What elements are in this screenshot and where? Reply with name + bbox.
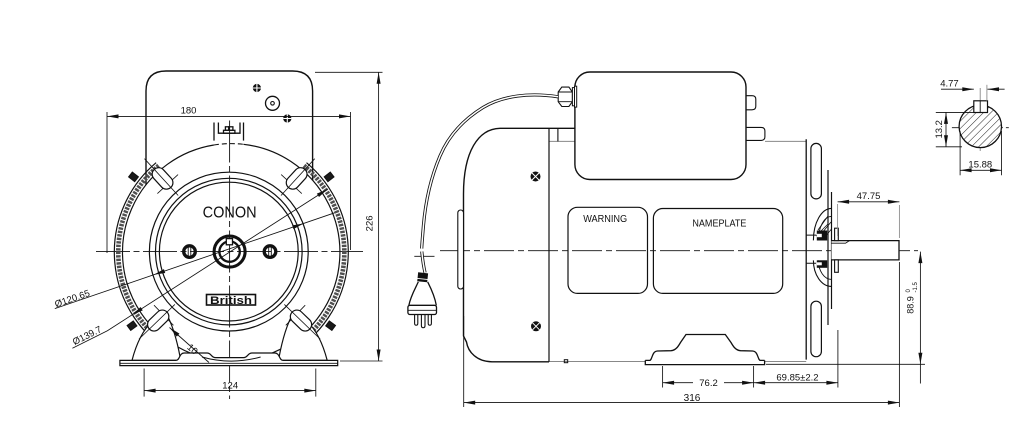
svg-text:76.2: 76.2	[699, 378, 718, 389]
svg-text:CONON: CONON	[203, 205, 257, 222]
svg-text:47.75: 47.75	[857, 191, 881, 202]
svg-text:4.77: 4.77	[940, 78, 959, 89]
svg-text:13.2: 13.2	[934, 120, 945, 139]
svg-text:WARNING: WARNING	[583, 214, 627, 225]
svg-text:-1.5: -1.5	[913, 281, 919, 292]
svg-text:69.85±2.2: 69.85±2.2	[776, 372, 818, 383]
svg-text:88.9: 88.9	[906, 296, 916, 314]
svg-text:226: 226	[364, 215, 375, 231]
svg-text:180: 180	[181, 106, 197, 117]
svg-text:15.88: 15.88	[968, 159, 992, 170]
svg-text:316: 316	[684, 393, 701, 404]
svg-text:NAMEPLATE: NAMEPLATE	[692, 218, 746, 229]
svg-text:124: 124	[222, 380, 238, 391]
